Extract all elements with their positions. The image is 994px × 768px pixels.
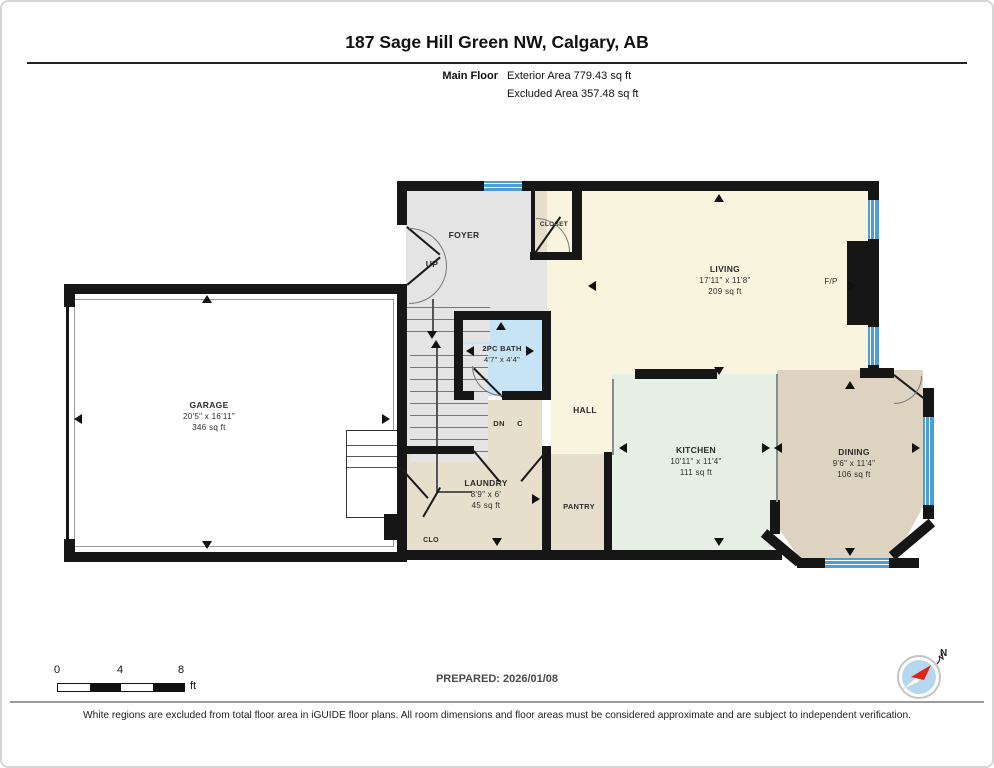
- window-icon: [484, 181, 522, 191]
- footer-divider: [10, 701, 984, 703]
- disclaimer-text: White regions are excluded from total fl…: [2, 710, 992, 721]
- fireplace-label: F/P: [815, 276, 847, 287]
- dimension-arrow: [496, 322, 506, 330]
- dimension-arrow: [202, 295, 212, 303]
- wall: [770, 500, 780, 534]
- dimension-arrow: [202, 541, 212, 549]
- compass-n-label: N: [940, 648, 947, 659]
- window-icon: [868, 200, 879, 239]
- window-icon: [923, 417, 934, 505]
- wall: [604, 452, 612, 558]
- scale-segment: [121, 684, 153, 691]
- dimension-arrow: [912, 443, 920, 453]
- partition-line: [612, 379, 614, 455]
- dimension-arrow: [714, 367, 724, 375]
- floorplan-page: 187 Sage Hill Green NW, Calgary, AB Main…: [0, 0, 994, 768]
- wall: [454, 311, 551, 320]
- stair-direction-arrow: [427, 331, 437, 339]
- laundry-label: LAUNDRY 8'9" x 6' 45 sq ft: [436, 478, 536, 511]
- wall: [454, 391, 474, 400]
- wall: [66, 294, 69, 552]
- hall-label: HALL: [550, 405, 620, 416]
- wall: [64, 539, 75, 552]
- stair-direction-arrow: [431, 340, 441, 348]
- stair-guide-line: [436, 346, 438, 492]
- dimension-arrow: [845, 548, 855, 556]
- dimension-arrow: [526, 346, 534, 356]
- compass-icon: N: [893, 646, 951, 709]
- dimension-arrow: [466, 346, 474, 356]
- prepared-date: PREPARED: 2026/01/08: [2, 673, 992, 685]
- dimension-arrow: [774, 443, 782, 453]
- wall: [923, 505, 934, 519]
- dimension-arrow: [762, 443, 770, 453]
- clo-label: CLO: [411, 535, 451, 546]
- dining-label: DINING 9'6" x 11'4" 106 sq ft: [794, 447, 914, 480]
- wall: [454, 311, 463, 400]
- wall: [397, 181, 407, 225]
- wall: [64, 294, 75, 307]
- wall: [64, 284, 406, 294]
- window-icon: [868, 327, 879, 365]
- dimension-arrow: [492, 538, 502, 546]
- dimension-arrow: [382, 414, 390, 424]
- wall: [542, 446, 551, 558]
- living-label: LIVING 17'11" x 11'8" 209 sq ft: [665, 264, 785, 297]
- partition-line: [776, 374, 778, 502]
- dimension-arrow: [619, 443, 627, 453]
- dimension-arrow: [588, 281, 596, 291]
- wall: [397, 181, 879, 191]
- garage-label: GARAGE 20'5" x 16'11" 346 sq ft: [149, 400, 269, 433]
- wall: [635, 369, 717, 379]
- wall: [384, 514, 400, 540]
- hall-area: [551, 311, 614, 454]
- garage-steps: [346, 430, 400, 518]
- kitchen-label: KITCHEN 10'11" x 11'4" 111 sq ft: [636, 445, 756, 478]
- c-label: C: [512, 418, 528, 429]
- scale-segment: [153, 684, 185, 691]
- wall: [64, 552, 406, 562]
- dn-label: DN: [486, 418, 512, 429]
- scale-segment: [58, 684, 90, 691]
- stair-guide-line: [432, 299, 434, 333]
- dimension-arrow: [714, 538, 724, 546]
- window-icon: [825, 558, 889, 568]
- steps-treads: [347, 435, 399, 469]
- wall: [406, 446, 474, 454]
- wall: [542, 311, 551, 400]
- dimension-arrow: [74, 414, 82, 424]
- wall: [860, 368, 894, 378]
- scale-segment: [90, 684, 122, 691]
- wall: [923, 388, 934, 417]
- dimension-arrow: [845, 381, 855, 389]
- wall: [502, 391, 551, 400]
- floorplan-canvas: FOYER UP CLOSET LIVING 17'11" x 11'8" 20…: [2, 2, 994, 768]
- wall: [572, 188, 582, 260]
- wall: [531, 190, 535, 254]
- wall: [868, 181, 879, 200]
- wall: [397, 550, 782, 560]
- dimension-arrow: [848, 281, 856, 291]
- dimension-arrow: [714, 194, 724, 202]
- dimension-arrow: [532, 494, 540, 504]
